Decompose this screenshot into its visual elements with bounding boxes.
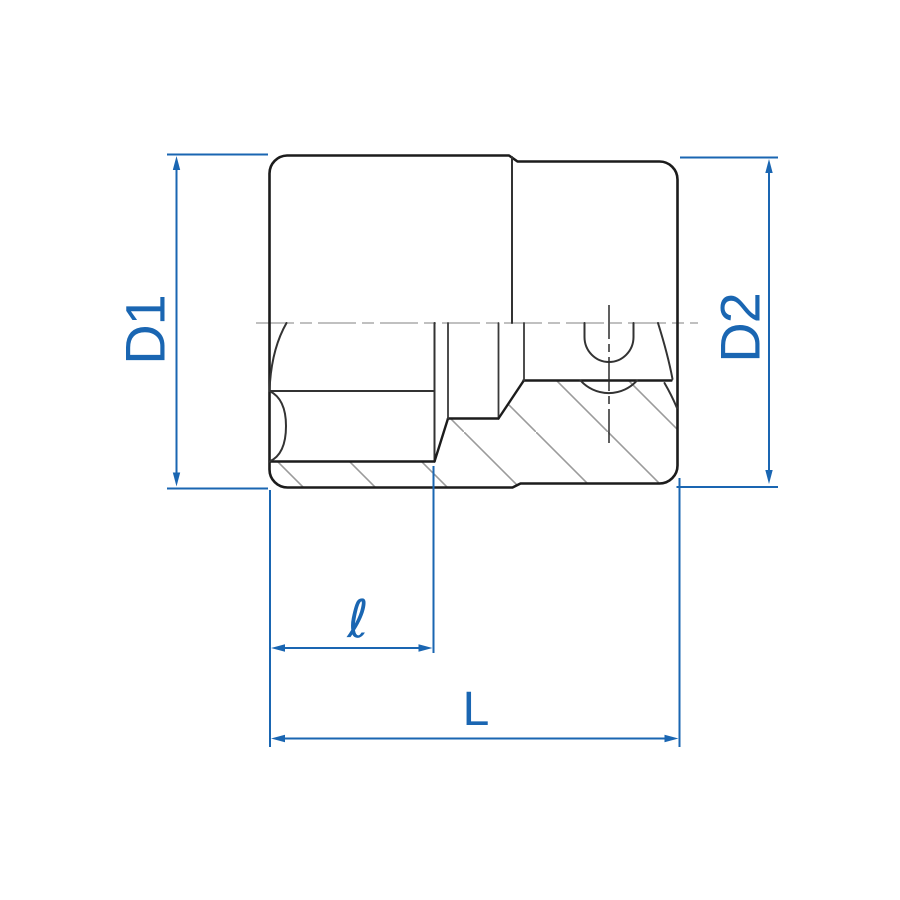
l-label: L bbox=[463, 683, 490, 736]
drawing-canvas: D1 D2 ℓ L bbox=[0, 0, 900, 900]
dimension-d1: D1 bbox=[114, 155, 269, 489]
socket-technical-drawing: D1 D2 ℓ L bbox=[0, 0, 900, 900]
dimension-l: L bbox=[271, 478, 680, 747]
l-arrow-left-icon bbox=[271, 735, 285, 742]
d1-arrow-down-icon bbox=[173, 473, 180, 487]
d1-arrow-up-icon bbox=[173, 156, 180, 170]
ell-label: ℓ bbox=[346, 590, 368, 650]
section-hatching bbox=[270, 381, 678, 488]
l-arrow-right-icon bbox=[665, 735, 679, 742]
d1-label: D1 bbox=[114, 295, 177, 365]
face-chamfer-arc-upper bbox=[658, 323, 673, 379]
d2-label: D2 bbox=[709, 293, 772, 363]
d2-arrow-up-icon bbox=[765, 159, 772, 173]
d2-arrow-down-icon bbox=[765, 470, 772, 484]
hex-corner-arc bbox=[270, 391, 287, 462]
ell-arrow-right-icon bbox=[419, 644, 433, 651]
dimension-ell: ℓ bbox=[270, 466, 434, 747]
ell-arrow-left-icon bbox=[271, 644, 285, 651]
hex-chamfer-arc-upper bbox=[270, 323, 287, 391]
